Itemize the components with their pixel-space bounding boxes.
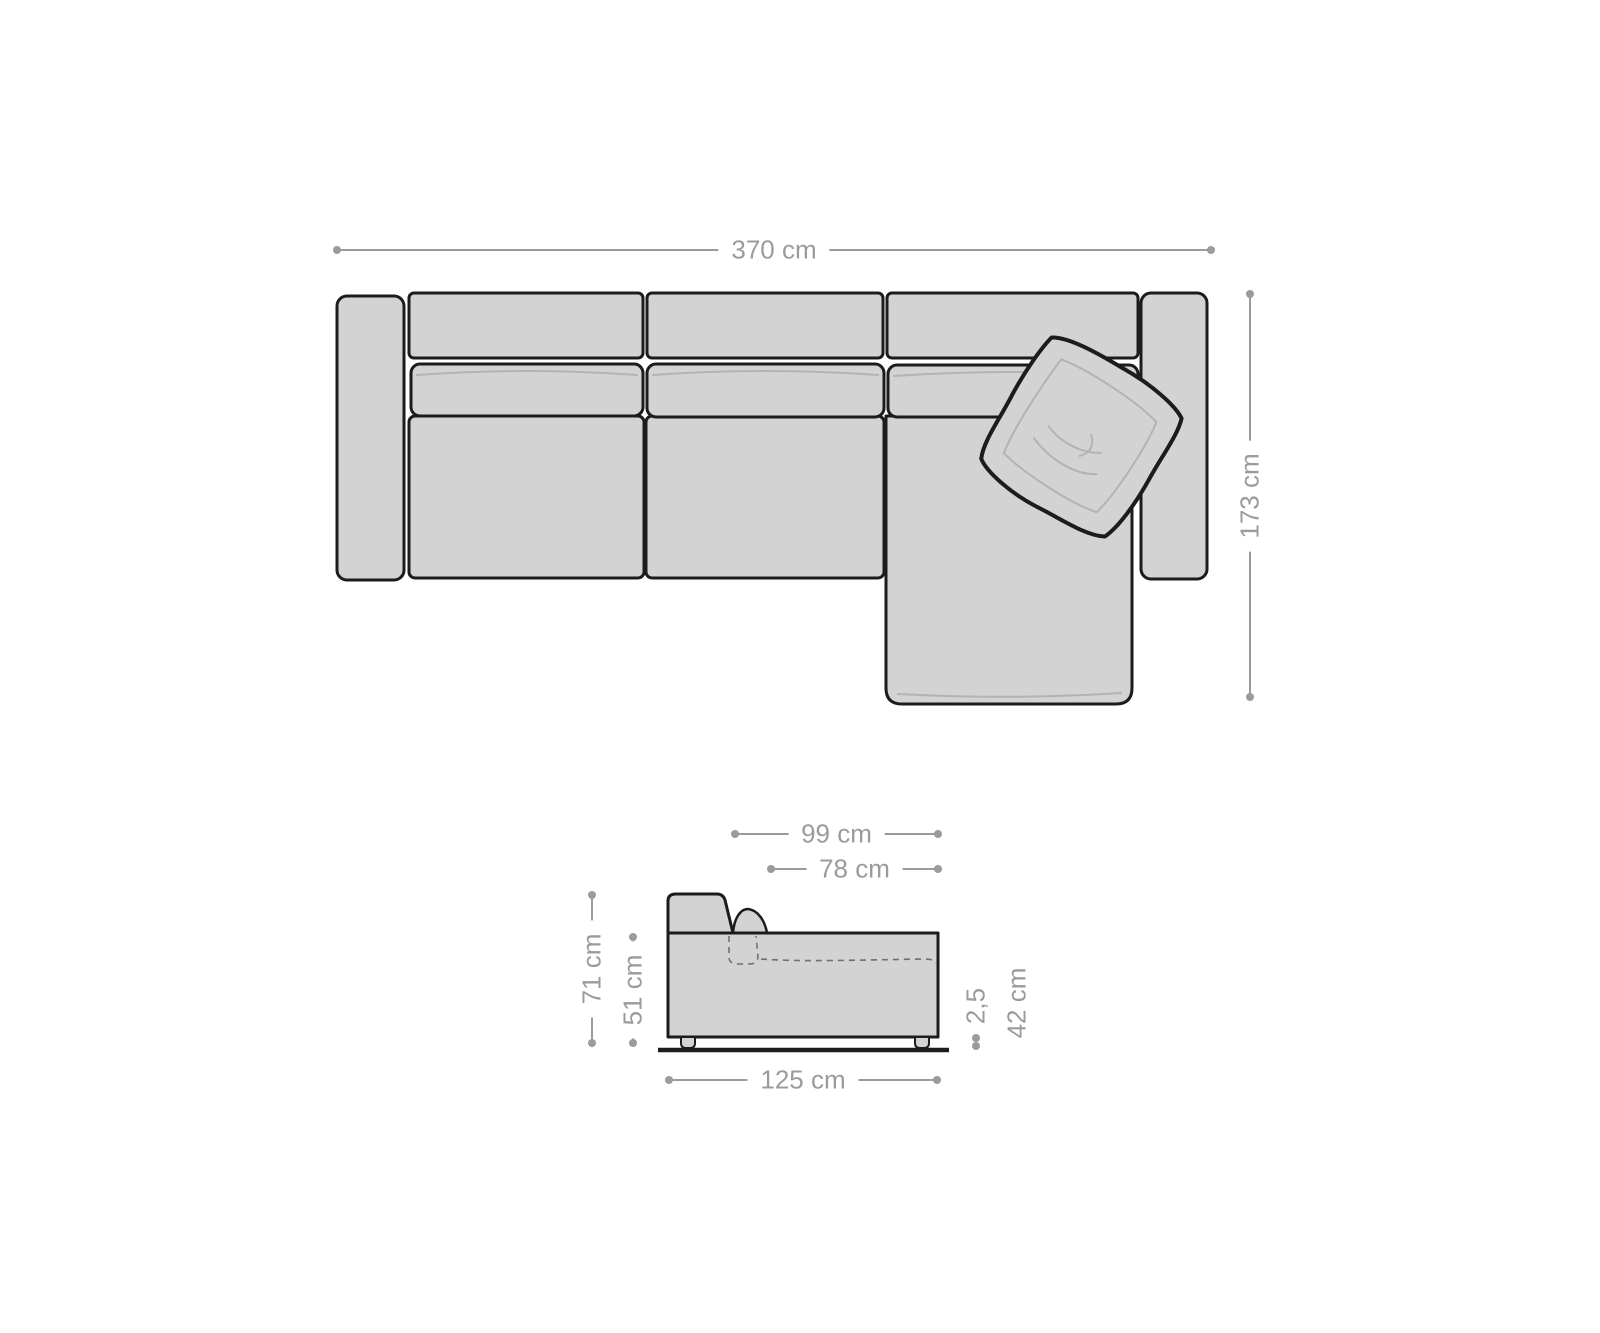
dimension-endpoint-dot xyxy=(934,830,942,838)
chaise-inner-depth-label: 78 cm xyxy=(806,854,903,885)
backrest-section-3 xyxy=(887,293,1138,358)
side-view-chaise-inner-depth-dimension: 78 cm xyxy=(767,865,942,873)
dimension-endpoint-dot xyxy=(588,1039,596,1047)
side-backrest xyxy=(668,894,733,933)
dimension-endpoint-dot xyxy=(972,1042,980,1050)
side-back-cushion xyxy=(733,909,767,933)
side-view-ground-clearance-dimension xyxy=(972,1034,980,1050)
left-armrest xyxy=(337,296,404,580)
backrest-section-2 xyxy=(647,293,883,358)
side-leg-right xyxy=(915,1037,929,1048)
seat-section-1 xyxy=(409,416,644,578)
sofa-side-view xyxy=(658,894,949,1050)
top-view-width-dimension: 370 cm xyxy=(333,246,1215,254)
side-view-seat-height-dimension: 42 cm xyxy=(1013,959,1021,1047)
backrest-section-1 xyxy=(409,293,643,358)
side-view-back-height-dimension: 71 cm xyxy=(588,891,596,1047)
sofa-line-drawing xyxy=(0,0,1600,1333)
chaise-total-depth-label: 99 cm xyxy=(788,819,885,850)
dimension-endpoint-dot xyxy=(629,1039,637,1047)
dimension-endpoint-dot xyxy=(933,1076,941,1084)
body-height-label: 51 cm xyxy=(618,942,649,1039)
ground-clearance-label: 2,5 xyxy=(960,980,993,1032)
side-view-width-label: 125 cm xyxy=(747,1065,858,1096)
dimension-endpoint-dot xyxy=(934,865,942,873)
sofa-top-view xyxy=(337,293,1207,704)
dimension-endpoint-dot xyxy=(1246,693,1254,701)
side-view-width-dimension: 125 cm xyxy=(665,1076,941,1084)
top-view-depth-label: 173 cm xyxy=(1235,440,1266,551)
side-view-chaise-total-depth-dimension: 99 cm xyxy=(731,830,942,838)
top-view-depth-dimension: 173 cm xyxy=(1246,290,1254,701)
back-height-label: 71 cm xyxy=(577,921,608,1018)
side-body xyxy=(668,933,938,1037)
top-view-width-label: 370 cm xyxy=(718,235,829,266)
side-view-body-height-dimension: 51 cm xyxy=(629,933,637,1047)
sofa-dimension-diagram: 370 cm 173 cm 99 cm 78 cm 71 cm 51 cm 2,… xyxy=(0,0,1600,1333)
dimension-endpoint-dot xyxy=(972,1034,980,1042)
side-leg-left xyxy=(681,1037,695,1048)
seat-section-2 xyxy=(646,416,884,578)
seat-height-label: 42 cm xyxy=(1002,955,1033,1052)
dimension-endpoint-dot xyxy=(1207,246,1215,254)
